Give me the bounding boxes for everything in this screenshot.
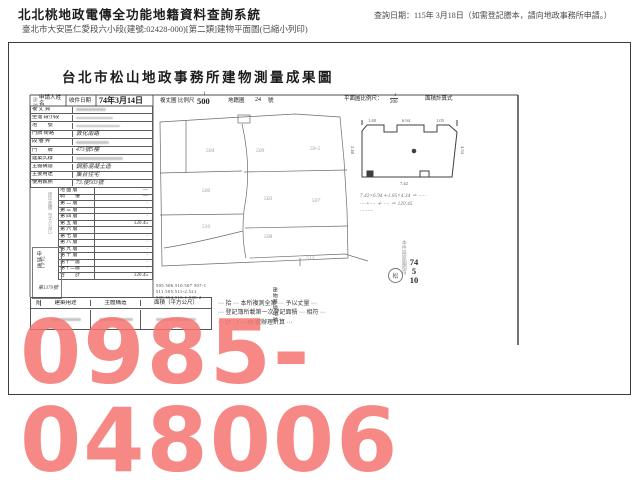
form-row-value: 73.使503號 bbox=[73, 180, 152, 187]
cadastral-label: 地籍圖 bbox=[228, 98, 245, 104]
floor-row-value: · bbox=[95, 207, 152, 213]
form-row: 建築式樣 bbox=[31, 155, 152, 163]
receive-date-label: 收件日期 bbox=[69, 98, 91, 104]
form-row-value bbox=[73, 125, 152, 128]
parcel-line: 505.506.510.507 507-1 bbox=[156, 283, 206, 288]
floor-row-label: 第 四 層 bbox=[59, 214, 95, 220]
floor-row-label: 第 六 層 bbox=[59, 227, 95, 233]
form-row-label: 建築式樣 bbox=[31, 156, 73, 162]
floor-row-label: 合 計 bbox=[59, 273, 95, 279]
form-row-value: 473號5樓 bbox=[73, 147, 152, 154]
floor-row-value: 120.45 bbox=[95, 273, 152, 279]
cadastral-no: 24 bbox=[255, 97, 261, 104]
form-row-value: 鋼筋混凝土造 bbox=[73, 164, 152, 171]
form-row: 段 巷 弄 bbox=[31, 139, 152, 147]
plan-scale-label: 平面圖比例尺： bbox=[344, 96, 383, 102]
form-row: 使用執照73.使503號 bbox=[31, 180, 152, 188]
form-row: 門牌 街路敦化南路 bbox=[31, 131, 152, 139]
handwriting-smudge bbox=[76, 108, 106, 111]
floor-row-value: — bbox=[95, 194, 152, 200]
map-label: 59-5 bbox=[310, 146, 320, 152]
calc-line: 7.42×6.94＋1.05×4.34 ＝ ····· bbox=[360, 194, 426, 200]
round-seal: 松 bbox=[388, 268, 403, 283]
map-label: 510 bbox=[202, 224, 210, 230]
floor-row-label: 第十一層 bbox=[59, 260, 95, 266]
map-label: 509 bbox=[256, 148, 264, 154]
form-row: 坐落 段小段 bbox=[31, 114, 152, 122]
dim-label: 2.40 bbox=[350, 146, 355, 154]
area-calc-label: 面積計算式 bbox=[425, 96, 453, 102]
handwriting-smudge bbox=[76, 117, 113, 120]
dim-label: 1.48 bbox=[368, 118, 376, 123]
page: { "header": { "system_title": "北北桃地政電傳全功… bbox=[0, 0, 640, 410]
floor-row-value: · bbox=[95, 253, 152, 259]
map-label: 508 bbox=[264, 234, 272, 240]
form-row-label: 使用執照 bbox=[31, 180, 73, 186]
form-row-label: 地 號 bbox=[31, 123, 73, 129]
watermark-phone: 0985-048006 bbox=[20, 309, 640, 485]
receipt-stamp-line2: 74.4.1 bbox=[38, 256, 44, 269]
receipt-stamp-box: 申請書 74.4.1 第1379號 bbox=[32, 247, 62, 299]
form-row-label: 門 牌 bbox=[31, 148, 73, 154]
info-table: 複 丈 員坐落 段小段地 號門牌 街路敦化南路段 巷 弄門 牌473號5樓建築式… bbox=[30, 106, 153, 188]
floor-row-label: 第 八 層 bbox=[59, 240, 95, 246]
map-label: 506 bbox=[202, 188, 210, 194]
form-row-label: 段 巷 弄 bbox=[31, 139, 73, 145]
survey-scale-label: 複丈圖 比例尺 bbox=[160, 98, 194, 104]
form-row: 複 丈 員 bbox=[31, 106, 152, 114]
calc-line: ········· bbox=[360, 209, 426, 215]
floor-row-label: 第 五 層 bbox=[59, 221, 95, 227]
floor-row-label: 第 十 層 bbox=[59, 253, 95, 259]
form-row-value bbox=[73, 141, 152, 144]
floor-row-value: · bbox=[95, 240, 152, 246]
receipt-stamp-line3: 第1379號 bbox=[38, 286, 58, 292]
form-row-label: 門牌 街路 bbox=[31, 131, 73, 137]
floor-row-label: 地 面 層 bbox=[59, 188, 95, 194]
form-row: 地 號 bbox=[31, 122, 152, 130]
area-calc-lines: 7.42×6.94＋1.05×4.34 ＝ ·········×···· ＋ ·… bbox=[360, 194, 426, 217]
form-row-label: 主要用途 bbox=[31, 172, 73, 178]
floor-row-value: · bbox=[95, 260, 152, 266]
floors-table: 地 面 層—騎 樓—第 二 層·第 三 層·第 四 層·第 五 層120.45第… bbox=[58, 188, 153, 280]
plan-scale-den: 200 bbox=[390, 98, 398, 105]
floor-row-label: 騎 樓 bbox=[59, 194, 95, 200]
system-title: 北北桃地政電傳全功能地籍資料查詢系統 bbox=[18, 8, 261, 22]
form-row: 門 牌473號5樓 bbox=[31, 147, 152, 155]
verify-date-day: 10 bbox=[407, 276, 421, 285]
form-row-label: 主體構造 bbox=[31, 164, 73, 170]
dim-label: 4.34 bbox=[460, 146, 465, 154]
handwriting-smudge bbox=[76, 141, 109, 144]
map-label: 504 bbox=[206, 148, 214, 154]
dim-label: 7.42 bbox=[400, 181, 408, 186]
receive-date-value: 74年3月14日 bbox=[99, 96, 143, 105]
form-row-value bbox=[73, 157, 152, 160]
floor-row-label: 第 九 層 bbox=[59, 247, 95, 253]
map-label: 512 bbox=[306, 256, 314, 262]
parcel-line: 511.505.511-2.521 bbox=[156, 289, 206, 294]
plan-scale-num: 1 bbox=[394, 92, 396, 97]
floor-row-value: · bbox=[95, 247, 152, 253]
dim-label: 1.05 bbox=[436, 118, 444, 123]
parcel-number-list: 505.506.510.507 507-1511.505.511-2.52150… bbox=[156, 283, 206, 302]
doc-subtitle: 臺北市大安區仁愛段六小段(建號:02428-000)[第二類]建物平面圖(已縮小… bbox=[22, 25, 308, 35]
survey-title: 台北市松山地政事務所建物測量成果圖 bbox=[62, 70, 334, 86]
handwriting-smudge bbox=[76, 157, 123, 160]
form-row-value bbox=[73, 108, 152, 111]
form-row: 主要用途集合住宅 bbox=[31, 172, 152, 180]
floor-row-value: · bbox=[95, 234, 152, 240]
form-row-value bbox=[73, 117, 152, 120]
map-label: 507 bbox=[312, 198, 320, 204]
floor-row-value: 120.45 bbox=[95, 221, 152, 227]
cadastral-unit: 號 bbox=[268, 98, 274, 104]
floor-row-label: 第 三 層 bbox=[59, 208, 95, 214]
dim-label: 6.94 bbox=[402, 118, 410, 123]
verify-date-stamp: 74 5 10 bbox=[407, 258, 421, 285]
parcel-line: 508.504.510-1.508-2 bbox=[156, 295, 206, 300]
query-date: 查詢日期：115年 3月18日（如需登記謄本，請向地政事務所申請。） bbox=[374, 11, 612, 20]
form-row-value: 集合住宅 bbox=[73, 172, 152, 179]
map-label: 503 bbox=[264, 196, 272, 202]
handwriting-smudge bbox=[76, 125, 120, 128]
floor-row-label: 第 二 層 bbox=[59, 201, 95, 207]
survey-scale-den: 500 bbox=[197, 97, 210, 107]
form-row-label: 坐落 段小段 bbox=[31, 115, 73, 121]
floor-row-label: 第 七 層 bbox=[59, 234, 95, 240]
calc-line: ····×···· ＋ ···· ＝ 120.45 bbox=[360, 202, 426, 208]
floor-row-label: 第十二層 bbox=[59, 266, 95, 272]
form-row-value: 敦化南路 bbox=[73, 131, 152, 138]
form-row-label: 複 丈 員 bbox=[31, 107, 73, 113]
form-row: 主體構造鋼筋混凝土造 bbox=[31, 163, 152, 171]
floor-row-value: · bbox=[95, 201, 152, 207]
floor-row-value: · bbox=[95, 227, 152, 233]
floor-row: 合 計120.45 bbox=[59, 273, 152, 280]
